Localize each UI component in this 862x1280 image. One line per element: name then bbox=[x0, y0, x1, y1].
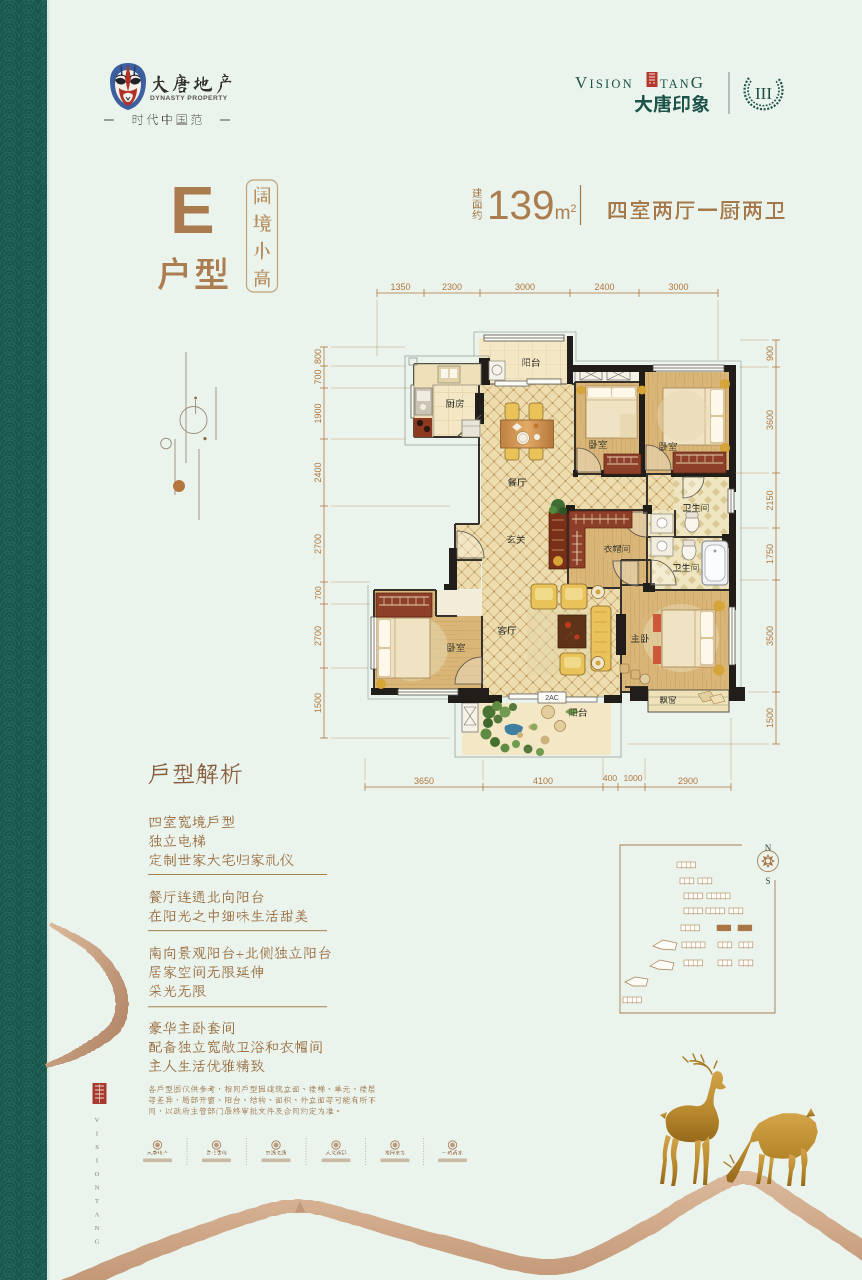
svg-text:N: N bbox=[765, 843, 772, 853]
svg-text:3600: 3600 bbox=[765, 410, 775, 430]
svg-text:2700: 2700 bbox=[313, 534, 323, 554]
svg-text:700: 700 bbox=[313, 369, 323, 384]
svg-text:1000: 1000 bbox=[624, 773, 643, 783]
svg-text:2400: 2400 bbox=[313, 462, 323, 482]
svg-text:2150: 2150 bbox=[765, 490, 775, 510]
svg-text:3500: 3500 bbox=[765, 626, 775, 646]
svg-text:3000: 3000 bbox=[668, 282, 688, 292]
svg-text:1750: 1750 bbox=[765, 544, 775, 564]
svg-text:S: S bbox=[765, 876, 770, 886]
svg-text:2300: 2300 bbox=[442, 282, 462, 292]
svg-text:III: III bbox=[755, 84, 772, 103]
svg-text:800: 800 bbox=[313, 349, 323, 364]
svg-text:2AC: 2AC bbox=[545, 695, 559, 702]
svg-text:1900: 1900 bbox=[313, 403, 323, 423]
svg-text:4100: 4100 bbox=[533, 776, 553, 786]
svg-text:2700: 2700 bbox=[313, 626, 323, 646]
svg-text:3650: 3650 bbox=[414, 776, 434, 786]
svg-text:E: E bbox=[170, 173, 215, 248]
svg-text:400: 400 bbox=[603, 773, 617, 783]
svg-text:2400: 2400 bbox=[594, 282, 614, 292]
svg-text:1500: 1500 bbox=[313, 693, 323, 713]
svg-text:700: 700 bbox=[314, 586, 323, 600]
svg-text:1500: 1500 bbox=[765, 708, 775, 728]
svg-text:900: 900 bbox=[765, 346, 775, 361]
svg-text:2900: 2900 bbox=[678, 776, 698, 786]
svg-text:1350: 1350 bbox=[390, 282, 410, 292]
svg-text:3000: 3000 bbox=[515, 282, 535, 292]
svg-text:DYNASTY PROPERTY: DYNASTY PROPERTY bbox=[150, 95, 228, 102]
